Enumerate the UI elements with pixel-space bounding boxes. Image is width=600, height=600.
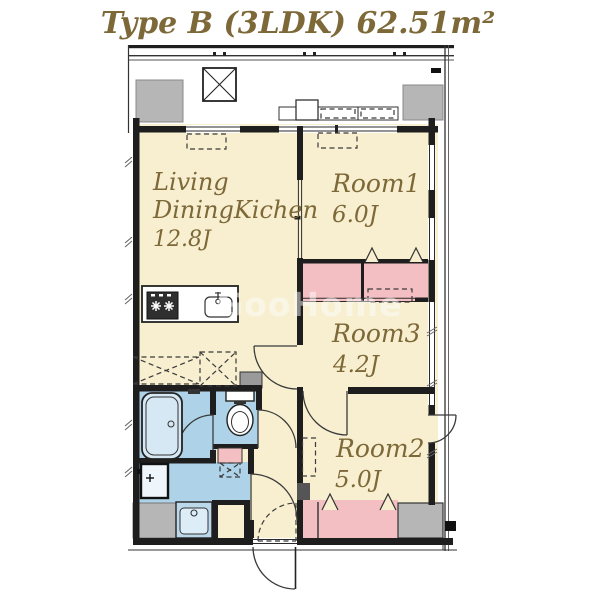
room1-name-label: Room1 bbox=[331, 169, 421, 198]
wall-top-b bbox=[240, 126, 279, 133]
floorplan-drawing: GooHome Type B (3LDK) 62.51m² Living Din… bbox=[0, 0, 600, 600]
wall-washroom-hall-a bbox=[248, 444, 254, 474]
room2-name-label: Room2 bbox=[335, 434, 425, 463]
balcony-partition-right bbox=[403, 85, 443, 120]
wall-ldk-room1-upper bbox=[297, 126, 303, 180]
shutter-box bbox=[296, 100, 318, 120]
washing-machine-icon bbox=[137, 464, 168, 498]
washbasin-icon bbox=[176, 502, 212, 538]
stove-knobs bbox=[151, 294, 171, 297]
ldk-label-line1: Living bbox=[152, 168, 229, 196]
pipe-space-bottom-left bbox=[133, 503, 180, 538]
wall-right-d bbox=[429, 405, 436, 415]
room1-size-label: 6.0J bbox=[332, 202, 380, 228]
wall-right-a bbox=[429, 118, 436, 145]
ldk-label-line2: DiningKichen bbox=[152, 196, 318, 224]
wall-bath-toilet-a bbox=[210, 388, 216, 415]
front-door-arc bbox=[253, 547, 295, 589]
wall-storage-right bbox=[244, 500, 250, 538]
wall-right-c bbox=[429, 260, 436, 302]
window-ldk bbox=[186, 125, 240, 133]
room3-name-label: Room3 bbox=[331, 319, 421, 348]
wall-hall-closet2 bbox=[297, 500, 303, 538]
faucet-tap-icon bbox=[137, 469, 142, 474]
boundary-mark-top bbox=[431, 68, 441, 73]
wall-hatch-left bbox=[125, 157, 132, 477]
wall-top-a bbox=[133, 126, 186, 133]
wall-room3-room2 bbox=[348, 387, 435, 394]
wall-toilet-hall bbox=[256, 388, 262, 410]
room2-size-label: 5.0J bbox=[335, 467, 383, 493]
floorplan-page: GooHome Type B (3LDK) 62.51m² Living Din… bbox=[0, 0, 600, 600]
room3-size-label: 4.2J bbox=[332, 352, 381, 378]
boundary-mark-bottom bbox=[445, 521, 456, 531]
ldk-size-label: 12.8J bbox=[153, 227, 212, 252]
wall-storage-left bbox=[212, 500, 218, 538]
wall-right-b bbox=[429, 190, 436, 218]
toilet-icon bbox=[226, 391, 254, 436]
wall-bottom-b bbox=[297, 538, 453, 545]
wall-left bbox=[133, 118, 140, 545]
entrance-storage-floor bbox=[218, 505, 244, 538]
wall-closet1-bottom-end bbox=[415, 298, 428, 303]
balcony-drain-pan-icon bbox=[203, 68, 236, 101]
pipe-block bbox=[297, 483, 310, 500]
shower-icon bbox=[188, 389, 200, 394]
wall-bottom-a bbox=[133, 538, 253, 545]
balcony-partition-left bbox=[136, 80, 183, 122]
entrance-porch bbox=[398, 503, 443, 538]
plan-title: Type B (3LDK) 62.51m² bbox=[101, 6, 495, 41]
